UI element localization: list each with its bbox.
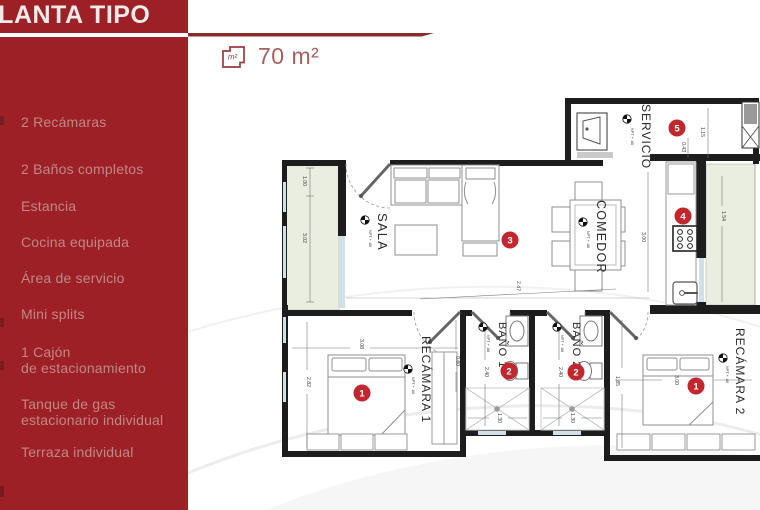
- room-label-servicio: SERVICIO: [639, 104, 653, 169]
- room-note-recamara1: NPT + .60: [411, 377, 415, 394]
- kitchen-sink: [673, 282, 698, 304]
- room-label-sala: SALA: [375, 213, 390, 251]
- badge-cocina: 4: [675, 208, 692, 225]
- svg-text:3.08: 3.08: [358, 339, 364, 349]
- accent-line: [188, 33, 434, 37]
- room-note-comedor: NPT + .60: [586, 231, 590, 248]
- svg-text:2.40: 2.40: [557, 367, 563, 377]
- feature-item-recamaras: 2 Recámaras: [21, 114, 181, 130]
- badge-recamara1: 1: [354, 385, 371, 402]
- stove: [673, 226, 697, 251]
- washer: [577, 113, 613, 158]
- title-separator-line: [0, 33, 188, 37]
- edge-tick: [0, 318, 4, 327]
- svg-text:1.15: 1.15: [699, 127, 705, 137]
- svg-text:4: 4: [680, 212, 686, 223]
- room-label-comedor: COMEDOR: [594, 200, 608, 274]
- badge-sala: 3: [502, 232, 519, 249]
- svg-text:1: 1: [693, 382, 699, 393]
- room-label-recamara2: RECÁMARA 2: [733, 328, 748, 415]
- water-heater: [742, 102, 759, 148]
- svg-text:1.85: 1.85: [614, 376, 620, 386]
- svg-text:1.54: 1.54: [720, 211, 726, 221]
- terraza-izquierda: [284, 164, 339, 310]
- closet-recamara2: [617, 434, 755, 450]
- svg-text:1.30: 1.30: [496, 413, 502, 423]
- svg-text:3.02: 3.02: [301, 233, 307, 243]
- page: PLANTA TIPO 2 Recámaras 2 Baños completo…: [0, 0, 760, 510]
- feature-item-terraza: Terraza individual: [21, 444, 181, 460]
- terraza-derecha: [706, 164, 755, 305]
- feature-item-servicio: Área de servicio: [21, 270, 181, 286]
- svg-text:2.47: 2.47: [515, 281, 521, 291]
- badge-servicio: 5: [669, 120, 686, 137]
- svg-text:2.40: 2.40: [483, 367, 489, 377]
- svg-text:2: 2: [506, 367, 511, 378]
- svg-text:1: 1: [359, 389, 365, 400]
- feature-item-cajon: 1 Cajón de estacionamiento: [21, 344, 181, 376]
- room-label-recamara1: RECÁMARA 1: [419, 336, 434, 423]
- area-m2-icon: m²: [219, 41, 247, 71]
- feature-item-banos: 2 Baños completos: [21, 161, 181, 177]
- badge-bano2: 2: [568, 364, 585, 381]
- svg-text:3: 3: [507, 236, 512, 247]
- area-header: m² 70 m²: [219, 41, 319, 71]
- svg-text:3.00: 3.00: [673, 375, 679, 385]
- coffee-table: [395, 225, 437, 255]
- room-note-bano1: NPT + .60: [486, 335, 490, 352]
- page-title: PLANTA TIPO: [0, 1, 150, 30]
- svg-text:3.00: 3.00: [640, 232, 646, 242]
- edge-tick: [0, 486, 4, 497]
- svg-text:2.82: 2.82: [305, 377, 311, 387]
- sidebar: PLANTA TIPO 2 Recámaras 2 Baños completo…: [0, 0, 188, 510]
- room-label-bano1: BAÑO 1: [496, 322, 509, 368]
- floor-plan: 1.00 3.02 3.08 2.82 0.80 2.40 1.30 2.40 …: [270, 80, 760, 470]
- room-label-bano2: BAÑO 2: [570, 322, 583, 368]
- kitchen: [666, 162, 698, 305]
- feature-item-estancia: Estancia: [21, 198, 181, 214]
- badge-recamara2: 1: [688, 378, 705, 395]
- room-note-bano2: NPT + .60: [560, 335, 564, 352]
- feature-item-minisplits: Mini splits: [21, 306, 181, 322]
- svg-text:2: 2: [573, 368, 578, 379]
- feature-item-tanque: Tanque de gas estacionario individual: [21, 396, 181, 428]
- room-note-sala: NPT + .60: [368, 230, 372, 247]
- svg-text:0.43: 0.43: [680, 142, 686, 152]
- room-note-recamara2: NPT + .60: [725, 366, 729, 383]
- badge-bano1: 2: [501, 363, 518, 380]
- svg-text:1.30: 1.30: [569, 413, 575, 423]
- svg-text:m²: m²: [228, 53, 238, 62]
- svg-text:0.80: 0.80: [454, 356, 460, 366]
- room-note-servicio: NPT + .60: [630, 128, 634, 145]
- feature-item-cocina: Cocina equipada: [21, 234, 181, 250]
- svg-text:1.00: 1.00: [301, 176, 307, 186]
- edge-tick: [0, 116, 4, 125]
- svg-text:5: 5: [674, 124, 680, 135]
- edge-tick: [0, 361, 4, 370]
- area-value: 70 m²: [258, 43, 319, 70]
